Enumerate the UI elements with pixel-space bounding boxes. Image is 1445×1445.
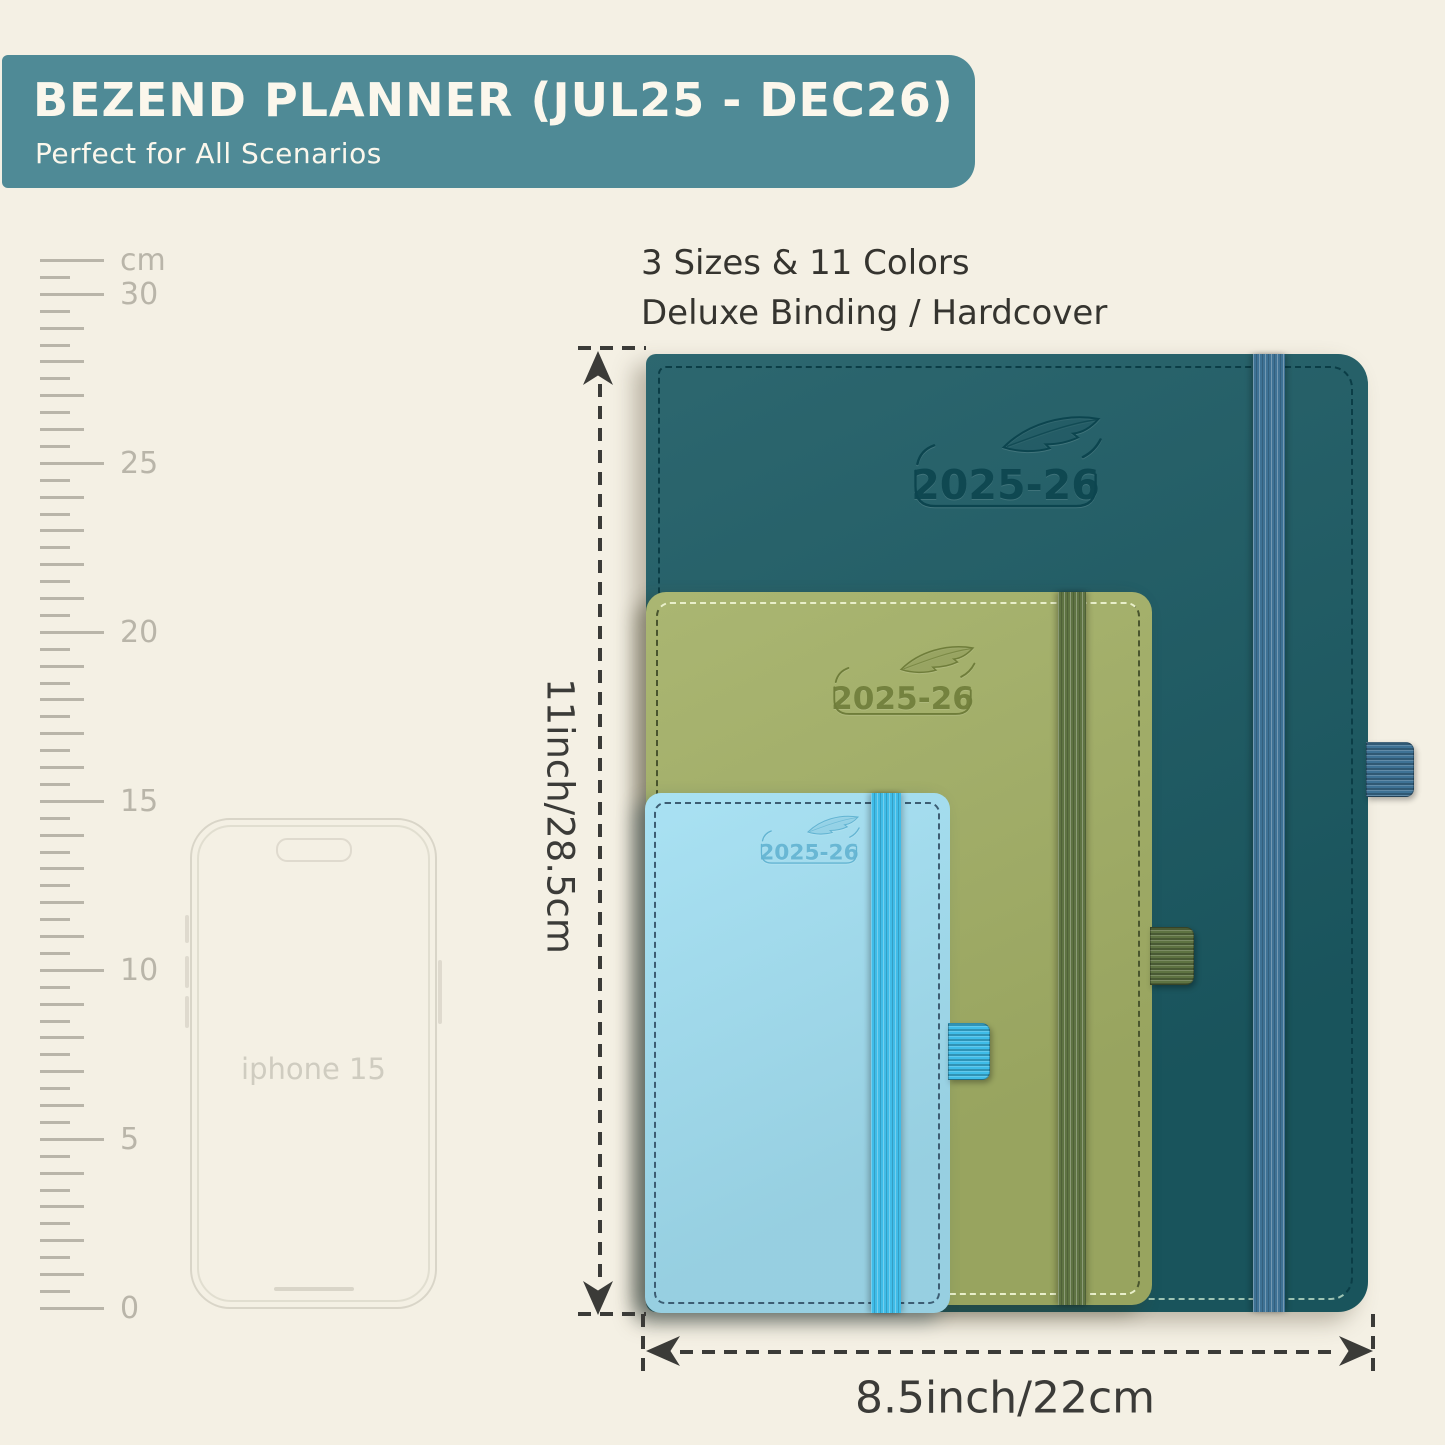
pen-loop [1150,927,1194,985]
height-dimension-line [598,384,602,1284]
ruler-tick [40,884,70,887]
ruler-tick [40,800,104,803]
mute-switch [185,915,189,943]
ruler-tick [40,665,84,668]
ruler-tick [40,1003,84,1006]
extent-line-bottom [578,1312,646,1316]
ruler-tick [40,1053,70,1056]
pen-loop [948,1023,990,1080]
arrow-up-icon [583,351,613,385]
ruler-tick [40,1070,84,1073]
ruler-tick [40,1087,70,1090]
product-info: 3 Sizes & 11 Colors Deluxe Binding / Har… [641,238,1107,338]
ruler-tick [40,563,84,566]
ruler-tick [40,327,84,330]
arrow-right-icon [1339,1336,1373,1366]
arrow-left-icon [646,1336,680,1366]
ruler-tick [40,1138,104,1141]
ruler-tick [40,766,84,769]
ruler-tick [40,1189,70,1192]
extent-line-left [641,1314,645,1374]
ruler-tick [40,513,70,516]
width-dimension-line [680,1350,1340,1354]
ruler-tick [40,698,84,701]
ruler-tick [40,1239,84,1242]
ruler-tick [40,1104,84,1107]
ruler-tick [40,614,70,617]
ruler-tick [40,310,70,313]
ruler-tick [40,1172,84,1175]
ruler-label: 10 [120,953,158,988]
ruler-tick [40,851,70,854]
ruler-tick [40,901,84,904]
phone-outline: iphone 15 [190,818,437,1309]
ruler-tick [40,1256,70,1259]
elastic-band [1058,592,1086,1305]
ruler-tick [40,817,70,820]
ruler-tick [40,1273,84,1276]
ruler-tick [40,293,104,296]
ruler-label: 0 [120,1291,139,1326]
ruler-tick [40,344,70,347]
ruler-tick [40,986,70,989]
ruler-tick [40,1307,104,1310]
power-button [438,960,442,1024]
ruler-tick [40,783,70,786]
title-banner: BEZEND PLANNER (JUL25 - DEC26) Perfect f… [2,55,975,188]
ruler-tick [40,1036,84,1039]
ruler-label: 30 [120,277,158,312]
year-emboss: 2025-26 [831,681,974,717]
extent-line-top [578,346,646,350]
ruler-unit: cm [120,243,166,278]
year-logo: 2025-26 [815,645,993,727]
volume-down-button [185,996,189,1028]
ruler-label: 25 [120,446,158,481]
volume-up-button [185,956,189,988]
ruler-tick [40,1155,70,1158]
ruler-tick [40,276,70,279]
home-indicator [274,1287,354,1291]
ruler-label: 5 [120,1122,139,1157]
ruler-tick [40,867,84,870]
ruler-tick [40,479,70,482]
ruler-tick [40,648,70,651]
ruler-tick [40,1290,70,1293]
ruler-tick [40,445,70,448]
ruler-tick [40,732,84,735]
ruler-tick [40,952,70,955]
year-logo: 2025-26 [748,815,872,872]
ruler-tick [40,529,84,532]
ruler-tick [40,682,70,685]
ruler-tick [40,580,70,583]
ruler-tick [40,496,84,499]
ruler-tick [40,259,104,262]
product-infographic: BEZEND PLANNER (JUL25 - DEC26) Perfect f… [0,0,1445,1445]
ruler-tick [40,631,104,634]
arrow-down-icon [583,1281,613,1315]
ruler-tick [40,969,104,972]
width-dimension-label: 8.5inch/22cm [855,1373,1155,1424]
ruler-label: 20 [120,615,158,650]
elastic-band [871,793,901,1313]
ruler-tick [40,428,84,431]
ruler-tick [40,411,70,414]
ruler-tick [40,918,70,921]
height-dimension-label: 11inch/28.5cm [539,678,582,954]
ruler-tick [40,597,84,600]
ruler-tick [40,1121,70,1124]
extent-line-right [1371,1314,1375,1374]
ruler-tick [40,1205,84,1208]
ruler-tick [40,462,104,465]
page-title: BEZEND PLANNER (JUL25 - DEC26) [33,73,954,127]
ruler-tick [40,834,84,837]
info-line-sizes: 3 Sizes & 11 Colors [641,238,1107,288]
ruler-tick [40,1020,70,1023]
elastic-band [1253,354,1285,1312]
ruler-tick [40,394,84,397]
ruler-tick [40,546,70,549]
info-line-binding: Deluxe Binding / Hardcover [641,288,1107,338]
pen-loop [1366,742,1414,797]
year-logo: 2025-26 [890,415,1125,523]
ruler-tick [40,377,70,380]
ruler-tick [40,715,70,718]
ruler-tick [40,360,84,363]
dynamic-island [276,838,352,862]
ruler-tick [40,1222,70,1225]
page-subtitle: Perfect for All Scenarios [35,137,382,170]
ruler-tick [40,749,70,752]
year-emboss: 2025-26 [911,461,1100,509]
phone-label: iphone 15 [192,1052,435,1086]
ruler-tick [40,935,84,938]
ruler-label: 15 [120,784,158,819]
planner-small: 2025-26 [645,793,950,1313]
year-emboss: 2025-26 [759,840,859,865]
